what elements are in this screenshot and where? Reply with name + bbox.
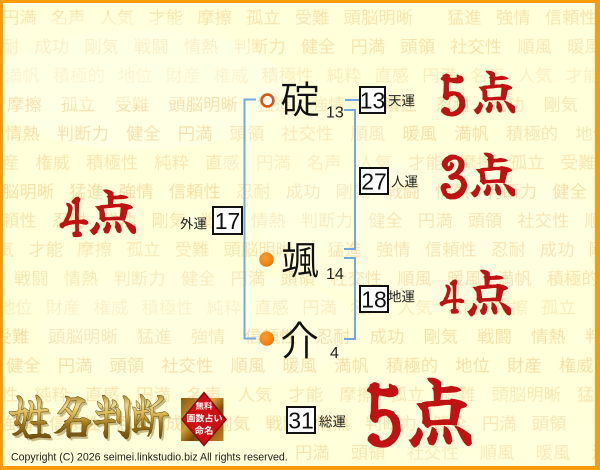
svg-text:31: 31 xyxy=(288,407,314,433)
svg-text:17: 17 xyxy=(215,208,241,234)
svg-text:13: 13 xyxy=(326,105,344,122)
svg-text:13: 13 xyxy=(360,87,386,113)
svg-text:27: 27 xyxy=(361,168,387,194)
svg-text:4: 4 xyxy=(330,345,339,362)
svg-text:14: 14 xyxy=(326,266,344,283)
svg-text:18: 18 xyxy=(361,286,387,312)
svg-text:Copyright (C) 2026 seimei.link: Copyright (C) 2026 seimei.linkstudio.biz… xyxy=(11,452,288,464)
